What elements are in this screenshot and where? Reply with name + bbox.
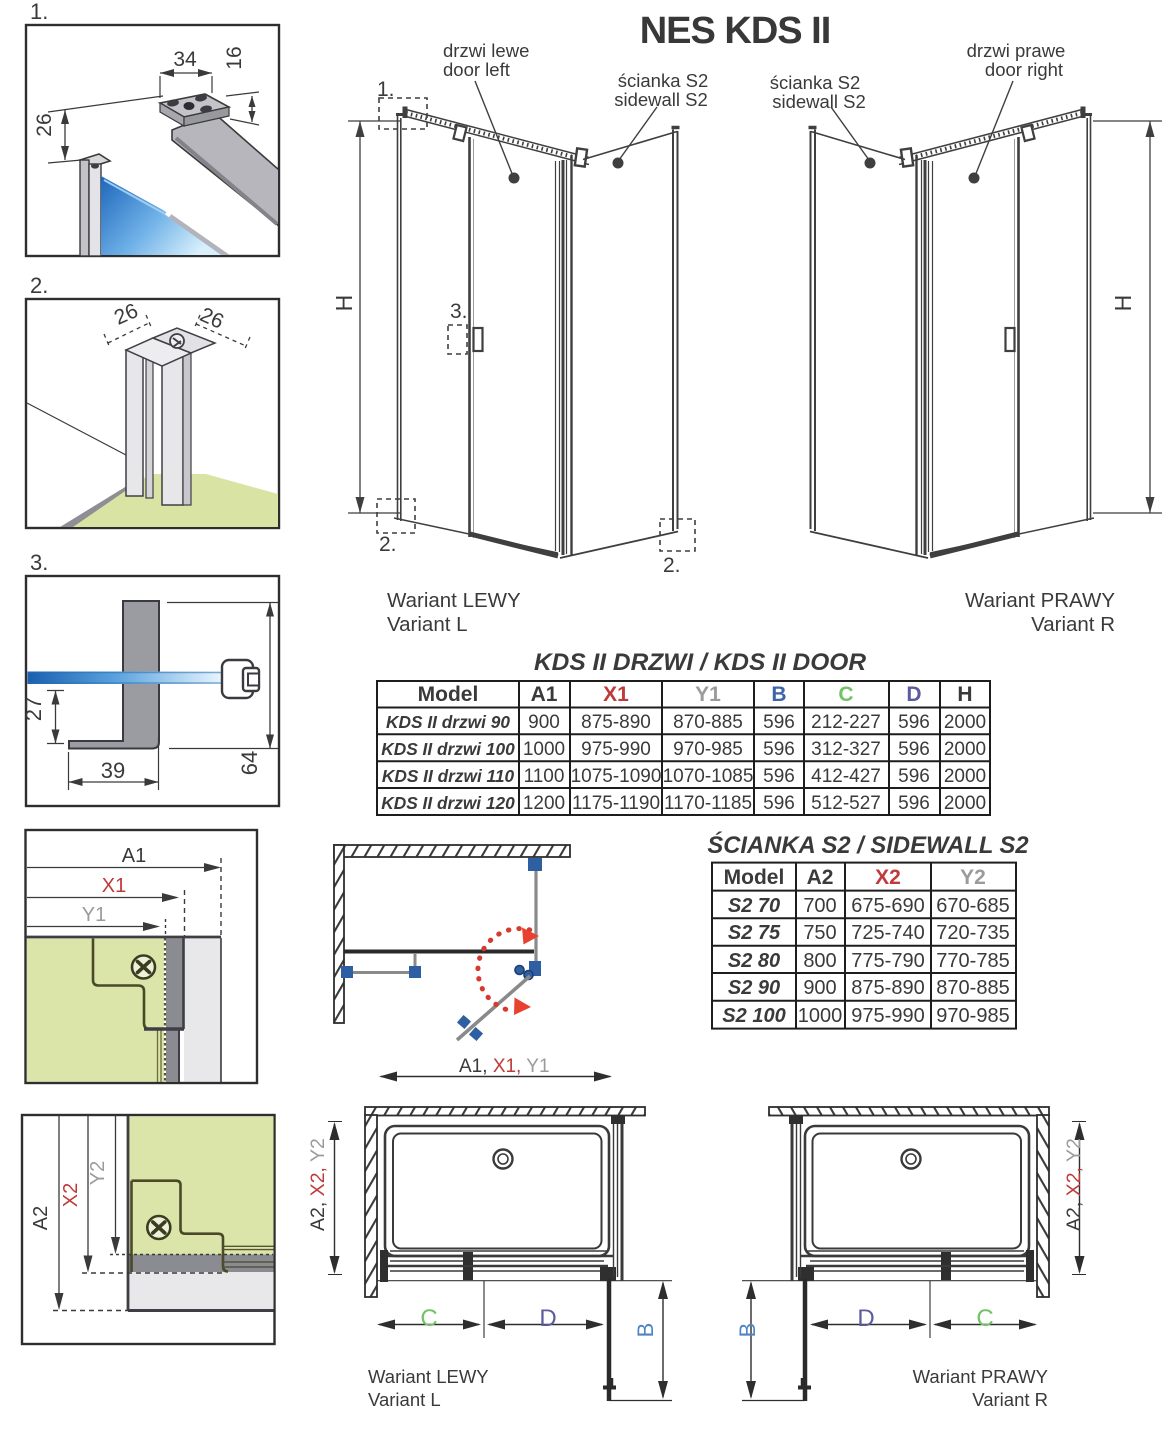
svg-text:2000: 2000: [944, 712, 986, 733]
svg-text:D: D: [906, 683, 921, 706]
svg-text:970-985: 970-985: [673, 739, 743, 760]
svg-text:596: 596: [898, 739, 930, 760]
svg-text:KDS II drzwi 120: KDS II drzwi 120: [381, 793, 515, 813]
svg-text:1100: 1100: [524, 766, 565, 787]
svg-text:596: 596: [898, 793, 930, 814]
svg-text:870-885: 870-885: [936, 977, 1009, 999]
svg-text:KDS II drzwi 110: KDS II drzwi 110: [382, 766, 515, 786]
svg-text:39: 39: [101, 758, 125, 783]
svg-text:C: C: [838, 683, 853, 706]
svg-text:1200: 1200: [523, 793, 565, 814]
svg-text:Wariant LEWY: Wariant LEWY: [387, 589, 521, 612]
svg-text:1000: 1000: [798, 1005, 843, 1027]
svg-text:A1: A1: [531, 683, 558, 706]
svg-text:H: H: [957, 683, 972, 706]
svg-text:875-890: 875-890: [581, 712, 651, 733]
svg-text:2.: 2.: [663, 554, 681, 577]
svg-text:Variant R: Variant R: [1031, 613, 1115, 636]
svg-text:2000: 2000: [944, 766, 986, 787]
svg-text:900: 900: [803, 977, 836, 999]
svg-text:KDS II drzwi 100: KDS II drzwi 100: [381, 739, 515, 759]
svg-text:S2 70: S2 70: [728, 895, 780, 917]
svg-text:A2: A2: [807, 866, 834, 889]
svg-text:770-785: 770-785: [936, 950, 1009, 972]
svg-text:X2: X2: [875, 866, 901, 889]
svg-text:512-527: 512-527: [811, 793, 881, 814]
svg-text:door left: door left: [443, 59, 510, 80]
svg-text:900: 900: [528, 712, 560, 733]
svg-text:Wariant PRAWY: Wariant PRAWY: [965, 589, 1115, 612]
svg-text:A1, X1, Y1: A1, X1, Y1: [459, 1056, 550, 1077]
svg-text:sidewall S2: sidewall S2: [772, 91, 866, 112]
svg-text:D: D: [857, 1305, 874, 1332]
svg-text:670-685: 670-685: [936, 895, 1009, 917]
svg-text:2000: 2000: [944, 793, 986, 814]
svg-text:870-885: 870-885: [673, 712, 743, 733]
svg-text:A1: A1: [122, 845, 146, 867]
svg-text:KDS II DRZWI / KDS II DOOR: KDS II DRZWI / KDS II DOOR: [534, 649, 866, 676]
svg-text:A2, X2, Y2: A2, X2, Y2: [307, 1138, 329, 1231]
svg-text:C: C: [420, 1305, 437, 1332]
svg-text:NES KDS II: NES KDS II: [640, 10, 831, 52]
svg-text:door right: door right: [985, 59, 1063, 80]
svg-text:drzwi lewe: drzwi lewe: [443, 40, 529, 61]
svg-text:1.: 1.: [30, 0, 48, 24]
svg-text:875-890: 875-890: [851, 977, 924, 999]
svg-text:1.: 1.: [377, 78, 395, 101]
svg-text:Wariant LEWY: Wariant LEWY: [368, 1366, 489, 1387]
svg-text:H: H: [331, 295, 357, 312]
svg-text:X1: X1: [102, 875, 126, 897]
svg-text:64: 64: [237, 751, 262, 775]
svg-text:KDS II drzwi 90: KDS II drzwi 90: [386, 712, 510, 732]
svg-text:1070-1085: 1070-1085: [663, 766, 754, 787]
svg-text:212-227: 212-227: [811, 712, 881, 733]
svg-text:B: B: [771, 683, 786, 706]
svg-text:700: 700: [803, 895, 836, 917]
svg-text:C: C: [976, 1305, 993, 1332]
svg-text:596: 596: [763, 766, 795, 787]
svg-text:725-740: 725-740: [851, 922, 924, 944]
svg-text:596: 596: [763, 712, 795, 733]
svg-text:Y2: Y2: [960, 866, 986, 889]
svg-text:B: B: [735, 1323, 760, 1338]
svg-text:16: 16: [223, 46, 246, 69]
svg-text:412-427: 412-427: [811, 766, 881, 787]
svg-text:800: 800: [803, 950, 836, 972]
svg-text:3.: 3.: [450, 300, 468, 323]
svg-text:596: 596: [763, 739, 795, 760]
svg-text:Y1: Y1: [695, 683, 721, 706]
svg-text:S2 80: S2 80: [728, 950, 780, 972]
svg-text:312-327: 312-327: [811, 739, 881, 760]
svg-text:S2 75: S2 75: [728, 922, 781, 944]
svg-text:720-735: 720-735: [936, 922, 1009, 944]
svg-text:26: 26: [33, 113, 56, 136]
svg-text:A2, X2, Y2: A2, X2, Y2: [1063, 1138, 1085, 1231]
svg-text:27: 27: [21, 697, 46, 721]
svg-text:S2 90: S2 90: [728, 977, 780, 999]
svg-text:Wariant PRAWY: Wariant PRAWY: [913, 1366, 1048, 1387]
svg-text:34: 34: [173, 48, 197, 71]
svg-text:sidewall S2: sidewall S2: [614, 89, 708, 110]
svg-text:ŚCIANKA S2 / SIDEWALL S2: ŚCIANKA S2 / SIDEWALL S2: [707, 831, 1028, 859]
svg-text:H: H: [1110, 295, 1136, 312]
svg-text:750: 750: [803, 922, 836, 944]
svg-text:1000: 1000: [523, 739, 565, 760]
svg-text:1075-1090: 1075-1090: [571, 766, 662, 787]
svg-text:ścianka S2: ścianka S2: [618, 70, 709, 91]
svg-text:975-990: 975-990: [851, 1005, 924, 1027]
svg-text:596: 596: [898, 712, 930, 733]
svg-text:D: D: [539, 1305, 556, 1332]
svg-text:drzwi prawe: drzwi prawe: [967, 40, 1066, 61]
svg-text:970-985: 970-985: [936, 1005, 1009, 1027]
svg-text:1175-1190: 1175-1190: [572, 793, 660, 814]
svg-text:Y2: Y2: [87, 1161, 109, 1185]
svg-text:Y1: Y1: [82, 904, 106, 926]
svg-text:2000: 2000: [944, 739, 986, 760]
svg-text:Model: Model: [724, 866, 785, 889]
svg-text:3.: 3.: [30, 550, 48, 575]
svg-text:A2: A2: [30, 1206, 52, 1230]
svg-text:2.: 2.: [30, 273, 48, 298]
svg-text:Variant L: Variant L: [368, 1389, 441, 1410]
svg-text:Variant L: Variant L: [387, 613, 468, 636]
svg-text:S2 100: S2 100: [722, 1005, 785, 1027]
svg-text:1170-1185: 1170-1185: [664, 793, 752, 814]
svg-text:975-990: 975-990: [581, 739, 651, 760]
svg-text:X1: X1: [603, 683, 629, 706]
svg-text:675-690: 675-690: [851, 895, 924, 917]
svg-text:Model: Model: [418, 683, 479, 706]
svg-text:2.: 2.: [379, 533, 397, 556]
svg-text:ścianka S2: ścianka S2: [770, 72, 861, 93]
svg-text:775-790: 775-790: [851, 950, 924, 972]
svg-text:596: 596: [898, 766, 930, 787]
svg-text:B: B: [633, 1323, 658, 1338]
svg-text:596: 596: [763, 793, 795, 814]
svg-text:X2: X2: [60, 1183, 82, 1207]
svg-text:Variant R: Variant R: [972, 1389, 1048, 1410]
